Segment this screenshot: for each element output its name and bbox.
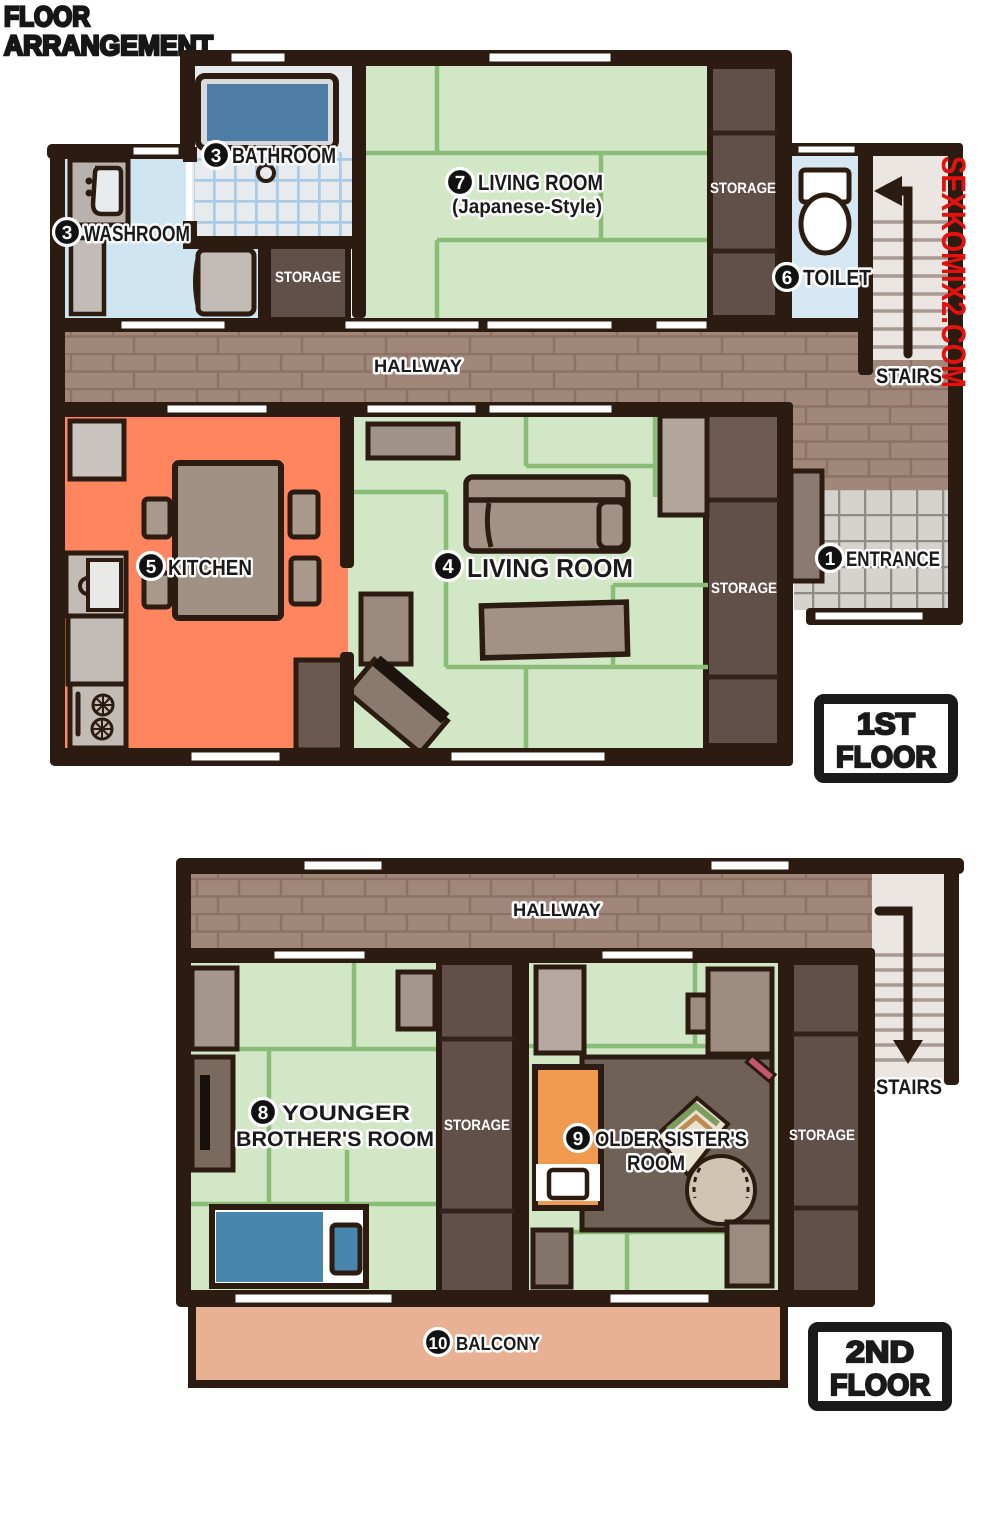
svg-text:ENTRANCE: ENTRANCE [846,548,940,571]
svg-text:2ND: 2ND [846,1336,914,1369]
svg-text:STAIRS: STAIRS [876,365,942,388]
svg-text:LIVING ROOM: LIVING ROOM [467,553,633,583]
svg-text:3: 3 [211,146,222,167]
svg-text:FLOOR: FLOOR [830,1369,930,1402]
svg-text:5: 5 [146,557,157,578]
svg-text:WASHROOM: WASHROOM [84,221,190,246]
svg-text:HALLWAY: HALLWAY [374,356,462,376]
svg-text:1ST: 1ST [857,708,915,741]
svg-text:STORAGE: STORAGE [710,180,776,197]
svg-text:LIVING ROOM: LIVING ROOM [478,170,603,195]
svg-text:10: 10 [429,1334,448,1353]
svg-text:FLOOR: FLOOR [4,1,90,32]
svg-text:ROOM: ROOM [627,1152,685,1175]
svg-text:4: 4 [442,556,454,578]
svg-text:TOILET: TOILET [803,265,871,290]
svg-text:8: 8 [258,1103,269,1124]
svg-text:3: 3 [62,223,73,244]
svg-text:FLOOR: FLOOR [836,741,936,774]
svg-text:STORAGE: STORAGE [711,580,777,597]
svg-text:YOUNGER: YOUNGER [282,1102,410,1125]
svg-text:HALLWAY: HALLWAY [513,900,601,920]
svg-text:9: 9 [573,1129,584,1150]
svg-text:STORAGE: STORAGE [275,269,341,286]
svg-text:KITCHEN: KITCHEN [168,555,252,580]
svg-text:(Japanese-Style): (Japanese-Style) [452,196,602,218]
svg-text:BROTHER'S ROOM: BROTHER'S ROOM [236,1128,434,1151]
svg-text:STORAGE: STORAGE [444,1117,510,1134]
svg-text:7: 7 [455,173,466,194]
svg-text:STAIRS: STAIRS [876,1076,942,1099]
svg-text:1: 1 [825,549,836,570]
svg-text:BATHROOM: BATHROOM [232,143,336,168]
svg-text:SEXKOMIX2.COM: SEXKOMIX2.COM [934,156,972,388]
svg-text:OLDER SISTER'S: OLDER SISTER'S [595,1128,747,1151]
svg-text:BALCONY: BALCONY [456,1334,540,1355]
svg-text:6: 6 [782,268,793,289]
svg-text:STORAGE: STORAGE [789,1127,855,1144]
